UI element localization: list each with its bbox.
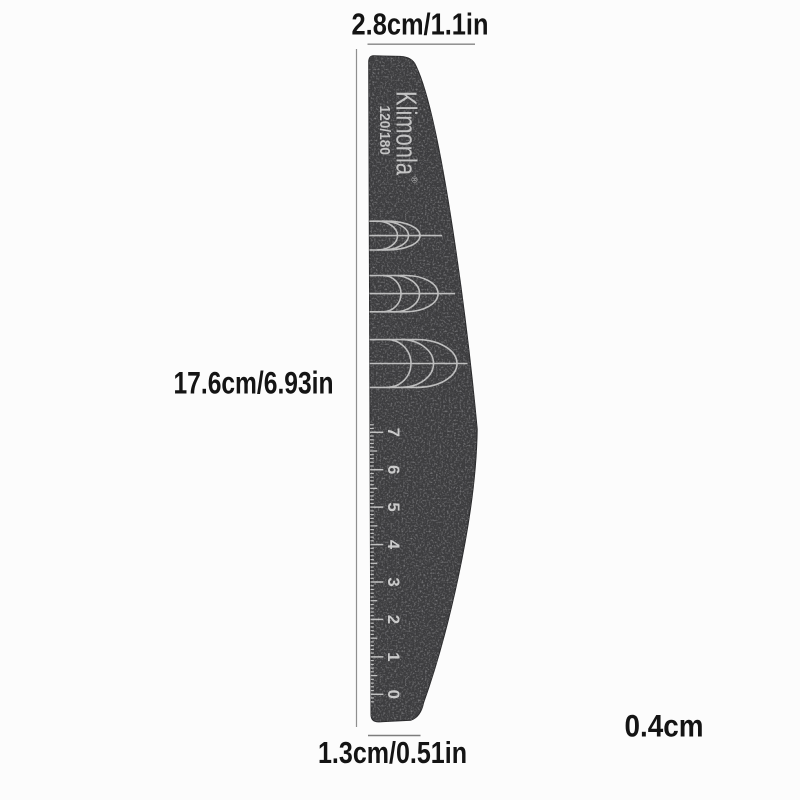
svg-text:0: 0	[384, 690, 403, 699]
svg-text:0.4cm: 0.4cm	[625, 708, 704, 744]
svg-text:5: 5	[384, 502, 403, 511]
svg-text:Klimonla: Klimonla	[390, 91, 422, 175]
svg-text:1.3cm/0.51in: 1.3cm/0.51in	[318, 735, 467, 770]
svg-text:3: 3	[384, 577, 403, 586]
svg-text:7: 7	[384, 428, 403, 437]
svg-text:2: 2	[384, 615, 403, 624]
svg-text:17.6cm/6.93in: 17.6cm/6.93in	[174, 365, 334, 401]
svg-text:2.8cm/1.1in: 2.8cm/1.1in	[352, 7, 489, 42]
svg-text:120/180: 120/180	[376, 106, 393, 156]
svg-text:4: 4	[384, 540, 403, 550]
svg-text:6: 6	[384, 465, 403, 474]
svg-text:1: 1	[384, 652, 403, 661]
svg-text:®: ®	[410, 177, 420, 184]
